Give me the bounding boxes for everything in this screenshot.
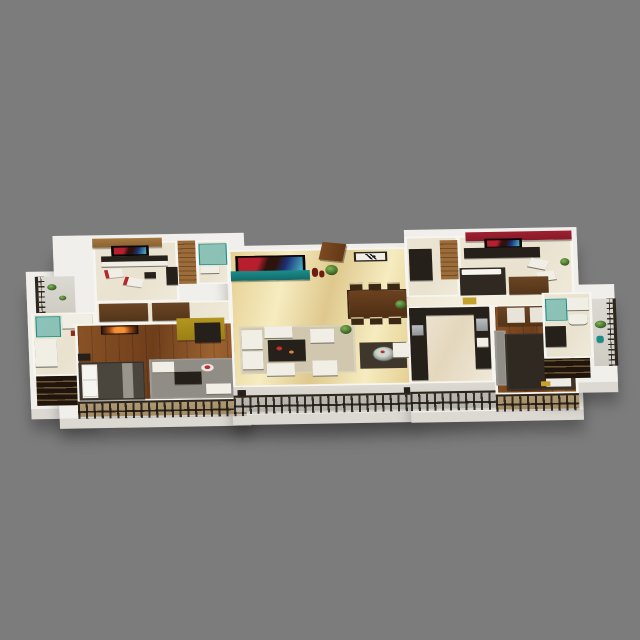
- utility-balcony-railing: [410, 390, 496, 411]
- bed-left-runner: [122, 363, 134, 398]
- lounge-chair-2: [206, 383, 231, 394]
- bedroom-left-wardrobe: [194, 322, 221, 342]
- bed-left-pillow-1: [83, 366, 97, 380]
- staircase-left: [177, 240, 196, 284]
- sofa-pouf-2: [312, 360, 338, 376]
- study-cabinet: [166, 267, 178, 285]
- rose-decor: [381, 350, 385, 353]
- side-balcony-right-railing: [606, 298, 618, 365]
- shower-enclosure-left: [35, 316, 61, 337]
- bed-left-pillow-2: [83, 381, 97, 396]
- balcony-left-railing: [78, 399, 247, 419]
- plant-dining: [395, 300, 406, 309]
- storage-shelf-right: [544, 358, 591, 379]
- bedroom-right-desk: [464, 247, 540, 259]
- ensuite-fixture-left: [200, 266, 219, 273]
- balcony-right-railing: [496, 393, 580, 412]
- study-tv-screen: [114, 247, 147, 254]
- wardrobe-right-panel-1: [507, 308, 525, 323]
- living-coffee-table: [268, 339, 306, 361]
- sofa-module-4: [267, 363, 296, 376]
- kitchen-counter-left: [409, 308, 428, 380]
- kitchen-sink: [412, 325, 424, 335]
- sofa-pouf-1: [310, 329, 334, 343]
- eagle-art-motif: [357, 254, 384, 260]
- kitchen-hob: [476, 318, 488, 331]
- teal-tv-console: [231, 270, 310, 281]
- study-side-table: [144, 272, 156, 278]
- bed-left-blanket: [97, 363, 144, 399]
- sunset-wall-art: [101, 325, 139, 335]
- bath-cabinet-left: [35, 339, 58, 367]
- wash-basin-right: [567, 298, 589, 311]
- dining-chair-4: [351, 317, 364, 325]
- study-tv: [111, 245, 149, 256]
- decor-vase-1: [312, 268, 319, 277]
- dining-chair-6: [389, 317, 402, 325]
- side-balcony-left-railing: [35, 277, 46, 314]
- bedroom-left-coffee-table: [174, 371, 202, 384]
- staircase-right: [440, 240, 459, 279]
- platform-bed-pillows: [462, 269, 502, 275]
- render-backdrop: [0, 0, 640, 640]
- eagle-wall-art: [354, 252, 388, 262]
- bedroom-right-tv-screen: [487, 240, 519, 247]
- lounge-chair-1: [152, 362, 174, 373]
- decor-vase-2: [319, 270, 324, 277]
- dining-chair-3: [387, 282, 400, 290]
- hall-wardrobe-1: [99, 303, 149, 322]
- bed-right-accent-cushion: [541, 381, 551, 386]
- foyer-dresser: [409, 249, 433, 281]
- kitchen-appliance: [477, 338, 489, 347]
- dining-chair-1: [350, 283, 363, 291]
- toilet-right: [568, 314, 587, 325]
- corridor-mat: [463, 297, 477, 304]
- sofa-module-3: [264, 326, 293, 338]
- entry-door-ajar: [319, 242, 347, 262]
- balcony-center-railing: [234, 393, 414, 415]
- ensuite-shower-left: [198, 243, 227, 265]
- nightstand-left: [78, 353, 91, 360]
- bath-vanity-right: [545, 326, 567, 347]
- shower-enclosure-right: [545, 299, 568, 321]
- sofa-module-1: [241, 330, 263, 350]
- sofa-module-2: [242, 351, 264, 369]
- dining-chair-2: [368, 283, 381, 291]
- teal-vase-right: [596, 336, 604, 343]
- dining-chair-5: [370, 317, 383, 325]
- floor-plan-scene: [15, 219, 626, 422]
- nook-armchair: [393, 343, 409, 358]
